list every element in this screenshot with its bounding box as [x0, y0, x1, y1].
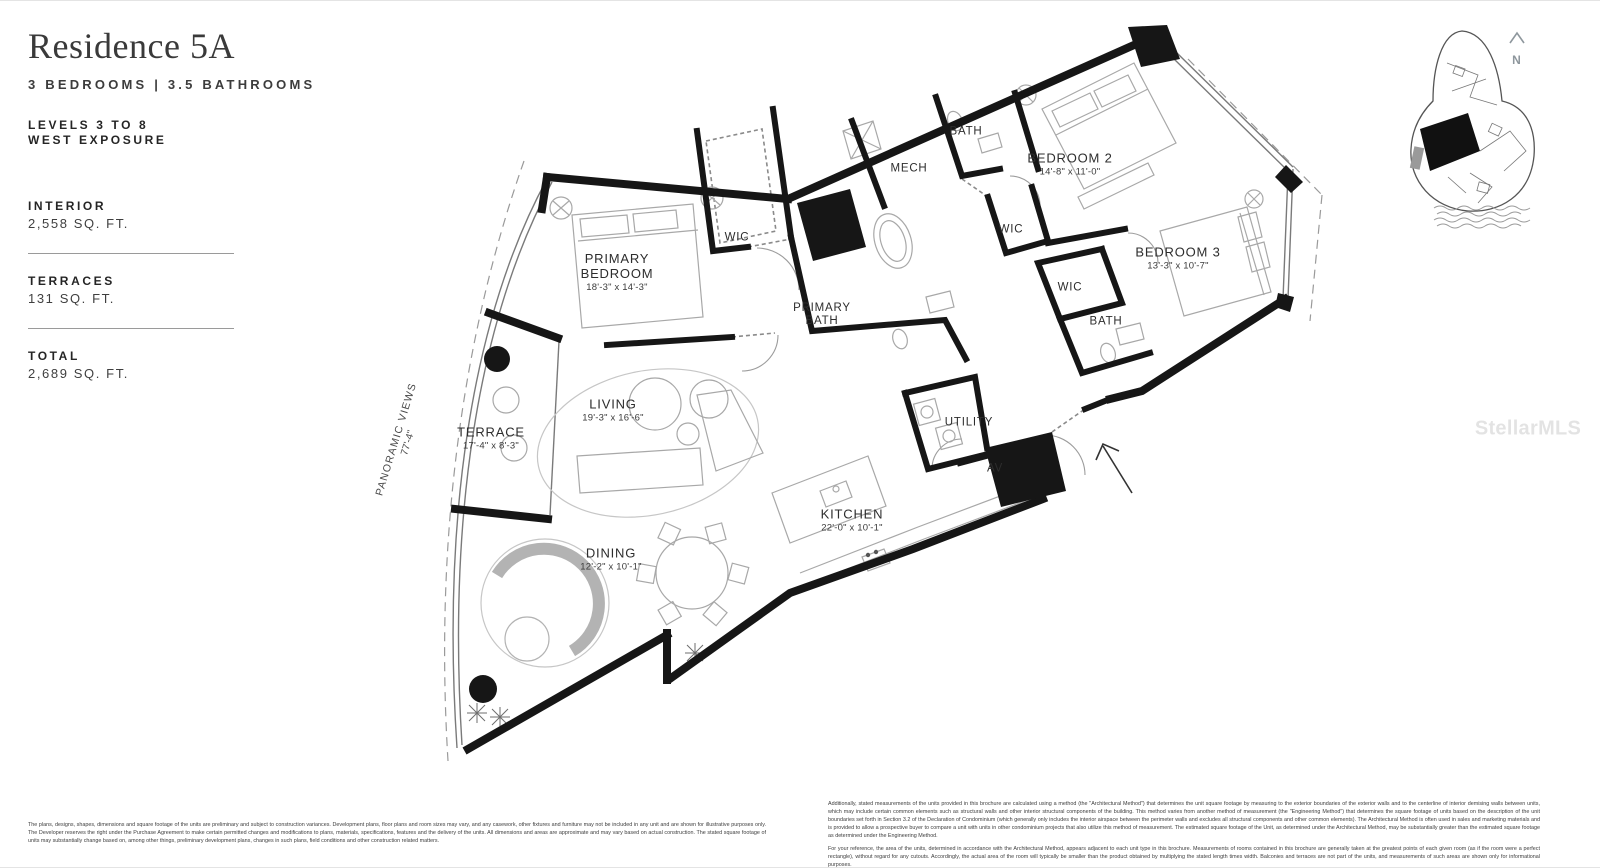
- floorplan-page: Residence 5A 3 BEDROOMS | 3.5 BATHROOMS …: [0, 0, 1600, 868]
- levels-text: LEVELS 3 TO 8: [28, 118, 348, 133]
- info-panel: Residence 5A 3 BEDROOMS | 3.5 BATHROOMS …: [28, 25, 348, 148]
- compass-north-label: N: [1512, 53, 1522, 67]
- room-label-bedroom-3: BEDROOM 3 13'-3" x 10'-7": [1113, 246, 1243, 273]
- disclaimer-left: The plans, designs, shapes, dimensions a…: [28, 821, 766, 849]
- room-label-av: AV: [987, 462, 1003, 475]
- north-arrow-icon: [1510, 33, 1524, 43]
- room-label-wic-bedroom-3: WIC: [1058, 281, 1083, 294]
- exposure-text: WEST EXPOSURE: [28, 133, 348, 148]
- room-label-mech: MECH: [890, 162, 927, 175]
- divider: [28, 328, 234, 329]
- stellar-mls-watermark: StellarMLS: [1475, 418, 1581, 441]
- room-label-primary-bath: PRIMARY BATH: [786, 302, 858, 328]
- room-label-wic-bedroom-2: WIC: [999, 223, 1024, 236]
- divider: [28, 253, 234, 254]
- room-label-bedroom-2: BEDROOM 2 14'-8" x 11'-0": [1005, 152, 1135, 179]
- room-label-terrace: TERRACE 17'-4" x 8'-3": [436, 426, 546, 453]
- stat-total: TOTAL 2,689 SQ. FT.: [28, 349, 236, 381]
- room-label-bath-3: BATH: [1089, 315, 1122, 328]
- room-label-primary-bedroom: PRIMARY BEDROOM 18'-3" x 14'-3": [561, 252, 673, 294]
- room-label-wic-primary: WIC: [725, 231, 750, 244]
- area-stats: INTERIOR 2,558 SQ. FT. TERRACES 131 SQ. …: [28, 199, 236, 381]
- levels-exposure: LEVELS 3 TO 8 WEST EXPOSURE: [28, 118, 348, 148]
- disclaimer-right: Additionally, stated measurements of the…: [828, 800, 1540, 868]
- entry-arrow: [1096, 444, 1132, 493]
- room-label-kitchen: KITCHEN 22'-0" x 10'-1": [787, 508, 917, 535]
- furniture: [481, 63, 1271, 667]
- bed-bath-subtitle: 3 BEDROOMS | 3.5 BATHROOMS: [28, 77, 348, 92]
- room-label-living: LIVING 19'-3" x 16'-6": [548, 398, 678, 425]
- room-label-utility: UTILITY: [945, 416, 993, 429]
- page-title: Residence 5A: [28, 25, 348, 67]
- room-label-bath-2: BATH: [949, 125, 982, 138]
- stat-interior: INTERIOR 2,558 SQ. FT.: [28, 199, 236, 231]
- room-label-dining: DINING 12'-2" x 10'-1": [551, 547, 671, 574]
- stat-terraces: TERRACES 131 SQ. FT.: [28, 274, 236, 306]
